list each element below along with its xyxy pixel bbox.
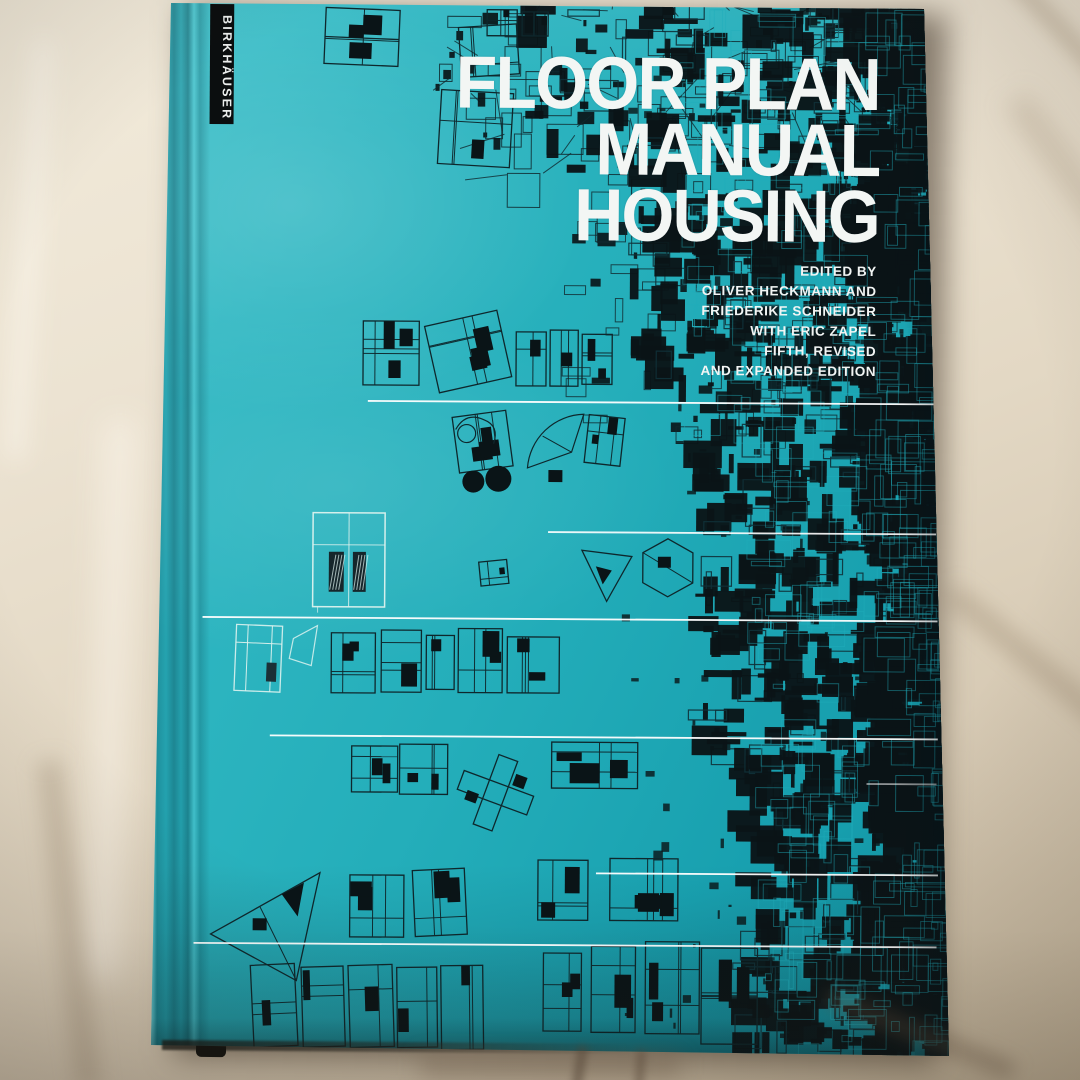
photo-vignette [0,0,1080,1080]
photo-frame: BIRKHÄUSER FLOOR PLAN MANUAL HOUSING EDI… [0,0,1080,1080]
